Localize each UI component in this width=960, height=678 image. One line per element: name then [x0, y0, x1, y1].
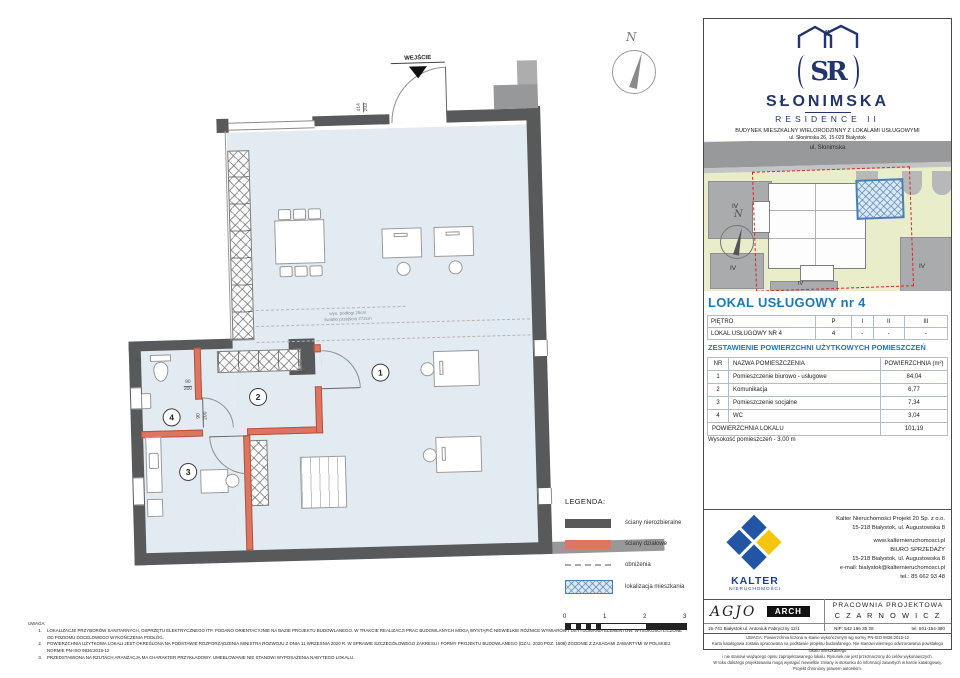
- info-panel: II SR SŁONIMSKA RESIDENCE II BUDYNEK MIE…: [703, 18, 952, 650]
- contact-line: www.kalternieruchomosci.pl: [805, 537, 945, 546]
- kalter-logo-icon: [726, 515, 783, 572]
- window-glazing: [534, 340, 548, 356]
- divider: [704, 633, 951, 634]
- monitor: [446, 231, 460, 235]
- map-street-label: ul. Słonimska: [704, 145, 951, 151]
- fine-print-line: Karta katalogowa została opracowana na p…: [707, 641, 948, 654]
- sink: [141, 393, 151, 409]
- contact-line: 15-218 Białystok, ul. Augustowska 8: [805, 524, 945, 533]
- agjo-text: AGJO: [710, 604, 756, 620]
- divider-vertical: [824, 599, 825, 631]
- cell: PIĘTRO: [708, 316, 816, 328]
- note-item: 2.POWIERZCHNIA UŻYTKOWA LOKALI JEST OKRE…: [28, 641, 688, 655]
- dimension-label: 90200: [196, 411, 209, 420]
- table-row: 1 Pomieszczenie biurowo - usługowe 84,04: [708, 371, 948, 384]
- cell: I: [852, 316, 874, 328]
- fine-print: UWAGA: Powierzchnia liczona w stanie wyk…: [707, 635, 948, 673]
- monitor: [394, 233, 408, 237]
- table-row: LOKAL USŁUGOWY NR 4 4 - - -: [708, 328, 948, 340]
- partition-wall: [315, 386, 323, 433]
- areas-section-title: ZESTAWIENIE POWIERZCHNI UŻYTKOWYCH POMIE…: [708, 343, 926, 352]
- cell: -: [904, 328, 947, 340]
- fine-print-line: W toku dalszego projektowania mogą wystą…: [707, 660, 948, 673]
- entrance-label: WEJŚCIE: [391, 55, 445, 65]
- monogram-ornament: [798, 55, 812, 89]
- cell: 4: [816, 328, 852, 340]
- logo-monogram: SR: [704, 55, 951, 89]
- contact-line: e-mail: bialystok@kalternieruchomosci.pl: [805, 564, 945, 573]
- chair: [294, 266, 307, 277]
- building-desc: BUDYNEK MIESZKALNY WIELORODZINNY Z LOKAL…: [704, 128, 951, 134]
- legend-swatch-lowered-ceiling: [565, 564, 611, 566]
- dimension-label: 90200: [184, 380, 193, 393]
- monogram-ornament: [845, 55, 859, 89]
- cell-name: WC: [729, 410, 881, 423]
- cell-nr: 2: [708, 384, 729, 397]
- room-number: 3: [186, 467, 191, 477]
- dim-bottom: 200: [297, 368, 306, 374]
- legend-label: ściany nierozbieralne: [625, 520, 681, 526]
- table-row: 2 Komunikacja 6,77: [708, 384, 948, 397]
- exterior-step: [517, 60, 538, 87]
- studio-nip: NIP: 542 166 35 28: [834, 626, 874, 631]
- scale-tick: 2: [643, 614, 646, 620]
- legend-swatch-unit-location: [565, 580, 613, 594]
- legend-item: obniżenia: [565, 558, 697, 579]
- cell: III: [904, 316, 947, 328]
- legend-label: lokalizacja mieszkania: [625, 584, 684, 590]
- total-value: 101,19: [881, 423, 948, 436]
- kitchen-appliance: [147, 499, 163, 517]
- studio-address: 15-741 Białystok ul. Antoniuk Fabryczny …: [708, 626, 800, 631]
- note-number: 1.: [28, 628, 42, 642]
- note-item: 1.LOKALIZACJE PRZYBORÓW SANITARNYCH, OSP…: [28, 628, 688, 642]
- dim-bottom: 200: [202, 411, 208, 420]
- chair: [293, 209, 306, 220]
- map-north-label: N: [734, 209, 743, 220]
- legend-label: obniżenia: [625, 562, 651, 568]
- room-number: 4: [169, 412, 174, 422]
- contact-line: tel.: 85 662 93 48: [805, 573, 945, 582]
- map-block-label: IV: [919, 263, 925, 270]
- partition-wall: [194, 348, 202, 400]
- table-row: 3 Pomieszczenie socjalne 7,34: [708, 397, 948, 410]
- height-note: Wysokość pomieszczeń - 3,00 m: [708, 437, 796, 443]
- brand-name: SŁONIMSKA: [704, 93, 951, 111]
- cell: P: [816, 316, 852, 328]
- studio-tel: tel. 501-154-380: [912, 626, 945, 631]
- legend-swatch-partition-wall: [565, 540, 611, 549]
- roofs-icon: II: [791, 24, 865, 50]
- roof-numeral: II: [825, 29, 829, 38]
- contact-line: Kalter Nieruchomości Projekt 20 Sp. z o.…: [805, 515, 945, 524]
- agjo-logo: AGJO ARCH: [710, 603, 810, 621]
- cell: LOKAL USŁUGOWY NR 4: [708, 328, 816, 340]
- cell: -: [873, 328, 904, 340]
- notes: UWAGA: 1.LOKALIZACJE PRZYBORÓW SANITARNY…: [28, 621, 688, 662]
- monitor: [439, 361, 443, 375]
- legend: LEGENDA: ściany nierozbieralne ściany dz…: [565, 497, 697, 632]
- dimension-label: 414203: [357, 102, 370, 113]
- scale-tick: 1: [603, 614, 606, 620]
- kalter-contact: Kalter Nieruchomości Projekt 20 Sp. z o.…: [805, 515, 945, 582]
- vent-arrow-icon: [135, 357, 141, 363]
- scale-tick: 3: [683, 614, 686, 620]
- brand-underline: [805, 112, 851, 113]
- kitchen-sink: [149, 453, 159, 469]
- floor-table: PIĘTRO P I II III LOKAL USŁUGOWY NR 4 4 …: [707, 315, 948, 340]
- floor-note-line2: światło przejścia 272cm: [324, 316, 372, 322]
- col-header-area: POWIERZCHNIA (m²): [881, 358, 948, 371]
- room-number: 2: [256, 392, 261, 402]
- wall-segment: [216, 119, 228, 133]
- legend-item: lokalizacja mieszkania: [565, 579, 697, 600]
- cell: -: [852, 328, 874, 340]
- scale-tick: 0: [563, 614, 566, 620]
- divider: [704, 509, 951, 510]
- table-row: PIĘTRO P I II III: [708, 316, 948, 328]
- map-plot-boundary: [752, 166, 914, 291]
- brand-header: II SR SŁONIMSKA RESIDENCE II BUDYNEK MIE…: [704, 19, 951, 141]
- cell-name: Komunikacja: [729, 384, 881, 397]
- areas-table: NR NAZWA POMIESZCZENIA POWIERZCHNIA (m²)…: [707, 357, 948, 436]
- cell-area: 84,04: [881, 371, 948, 384]
- wardrobe-hatch: [217, 349, 302, 373]
- total-label: POWIERZCHNIA LOKALU: [708, 423, 881, 436]
- conference-table: [274, 219, 325, 264]
- col-header-name: NAZWA POMIESZCZENIA: [729, 358, 881, 371]
- chair: [278, 209, 291, 220]
- studio-name-1: PRACOWNIA PROJEKTOWA: [828, 602, 948, 609]
- exterior-step: [493, 84, 538, 109]
- kalter-brand: KALTER: [714, 575, 796, 587]
- legend-item: ściany nierozbieralne: [565, 516, 697, 537]
- map-driveway: [932, 171, 951, 195]
- monogram-wrap: SR: [704, 55, 951, 91]
- contact-line: BIURO SPRZEDAŻY: [805, 546, 945, 555]
- cell-nr: 4: [708, 410, 729, 423]
- door-leaf: [445, 67, 448, 121]
- legend-title: LEGENDA:: [565, 497, 697, 506]
- notes-title: UWAGA:: [28, 621, 688, 628]
- entrance-arrow-icon: [409, 66, 427, 78]
- shelving-unit: [300, 456, 347, 509]
- dim-bottom: 200: [184, 386, 193, 392]
- studio-name-2: C Z A R N O W I C Z: [828, 611, 948, 620]
- brand-subname: RESIDENCE II: [704, 114, 951, 124]
- cell: II: [873, 316, 904, 328]
- wardrobe-hatch: [249, 440, 269, 506]
- contact-line: 15-218 Białystok, ul. Augustowska 8: [805, 555, 945, 564]
- table-row: 4 WC 3,04: [708, 410, 948, 423]
- table-total-row: POWIERZCHNIA LOKALU 101,19: [708, 423, 948, 436]
- dim-bottom: 203: [363, 103, 369, 112]
- cell-name: Pomieszczenie socjalne: [729, 397, 881, 410]
- cell-area: 6,77: [881, 384, 948, 397]
- chair: [279, 266, 292, 277]
- note-number: 3.: [28, 655, 42, 662]
- cell-nr: 3: [708, 397, 729, 410]
- window-glazing: [133, 477, 144, 505]
- chair: [308, 208, 321, 219]
- room-number: 1: [378, 368, 383, 378]
- monitor: [442, 447, 446, 461]
- chair: [309, 265, 322, 276]
- partition-wall: [314, 344, 321, 352]
- cell-area: 3,04: [881, 410, 948, 423]
- kalter-brand-sub: NIERUCHOMOŚCI: [714, 587, 796, 592]
- divider: [704, 599, 951, 600]
- note-text: LOKALIZACJE PRZYBORÓW SANITARNYCH, OSPRZ…: [47, 628, 688, 642]
- note-number: 2.: [28, 641, 42, 655]
- legend-label: ściany działowe: [625, 541, 667, 547]
- cell-nr: 1: [708, 371, 729, 384]
- divider: [704, 623, 951, 624]
- arch-badge: ARCH: [767, 606, 810, 617]
- map-block-label: IV: [730, 265, 736, 272]
- window-glazing: [226, 120, 314, 130]
- note-item: 3.PRZEDSTAWIONA NA RZUTACH ARANŻACJA MA …: [28, 655, 688, 662]
- legend-swatch-structural-wall: [565, 519, 611, 528]
- wall-segment: [312, 114, 389, 126]
- table-header-row: NR NAZWA POMIESZCZENIA POWIERZCHNIA (m²): [708, 358, 948, 371]
- dimension-label: 90200: [297, 363, 306, 376]
- north-label: N: [626, 30, 637, 44]
- window-glazing: [131, 387, 142, 409]
- note-text: POWIERZCHNIA UŻYTKOWA LOKALI JEST OKREŚL…: [47, 641, 688, 655]
- note-text: PRZEDSTAWIONA NA RZUTACH ARANŻACJA MA CH…: [47, 655, 354, 662]
- col-header-nr: NR: [708, 358, 729, 371]
- site-map: ul. Słonimska IV IV IV IV N: [704, 141, 951, 291]
- legend-item: ściany działowe: [565, 537, 697, 558]
- unit-title: LOKAL USŁUGOWY nr 4: [708, 295, 866, 310]
- window-glazing: [538, 488, 552, 504]
- cell-name: Pomieszczenie biurowo - usługowe: [729, 371, 881, 384]
- cell-area: 7,34: [881, 397, 948, 410]
